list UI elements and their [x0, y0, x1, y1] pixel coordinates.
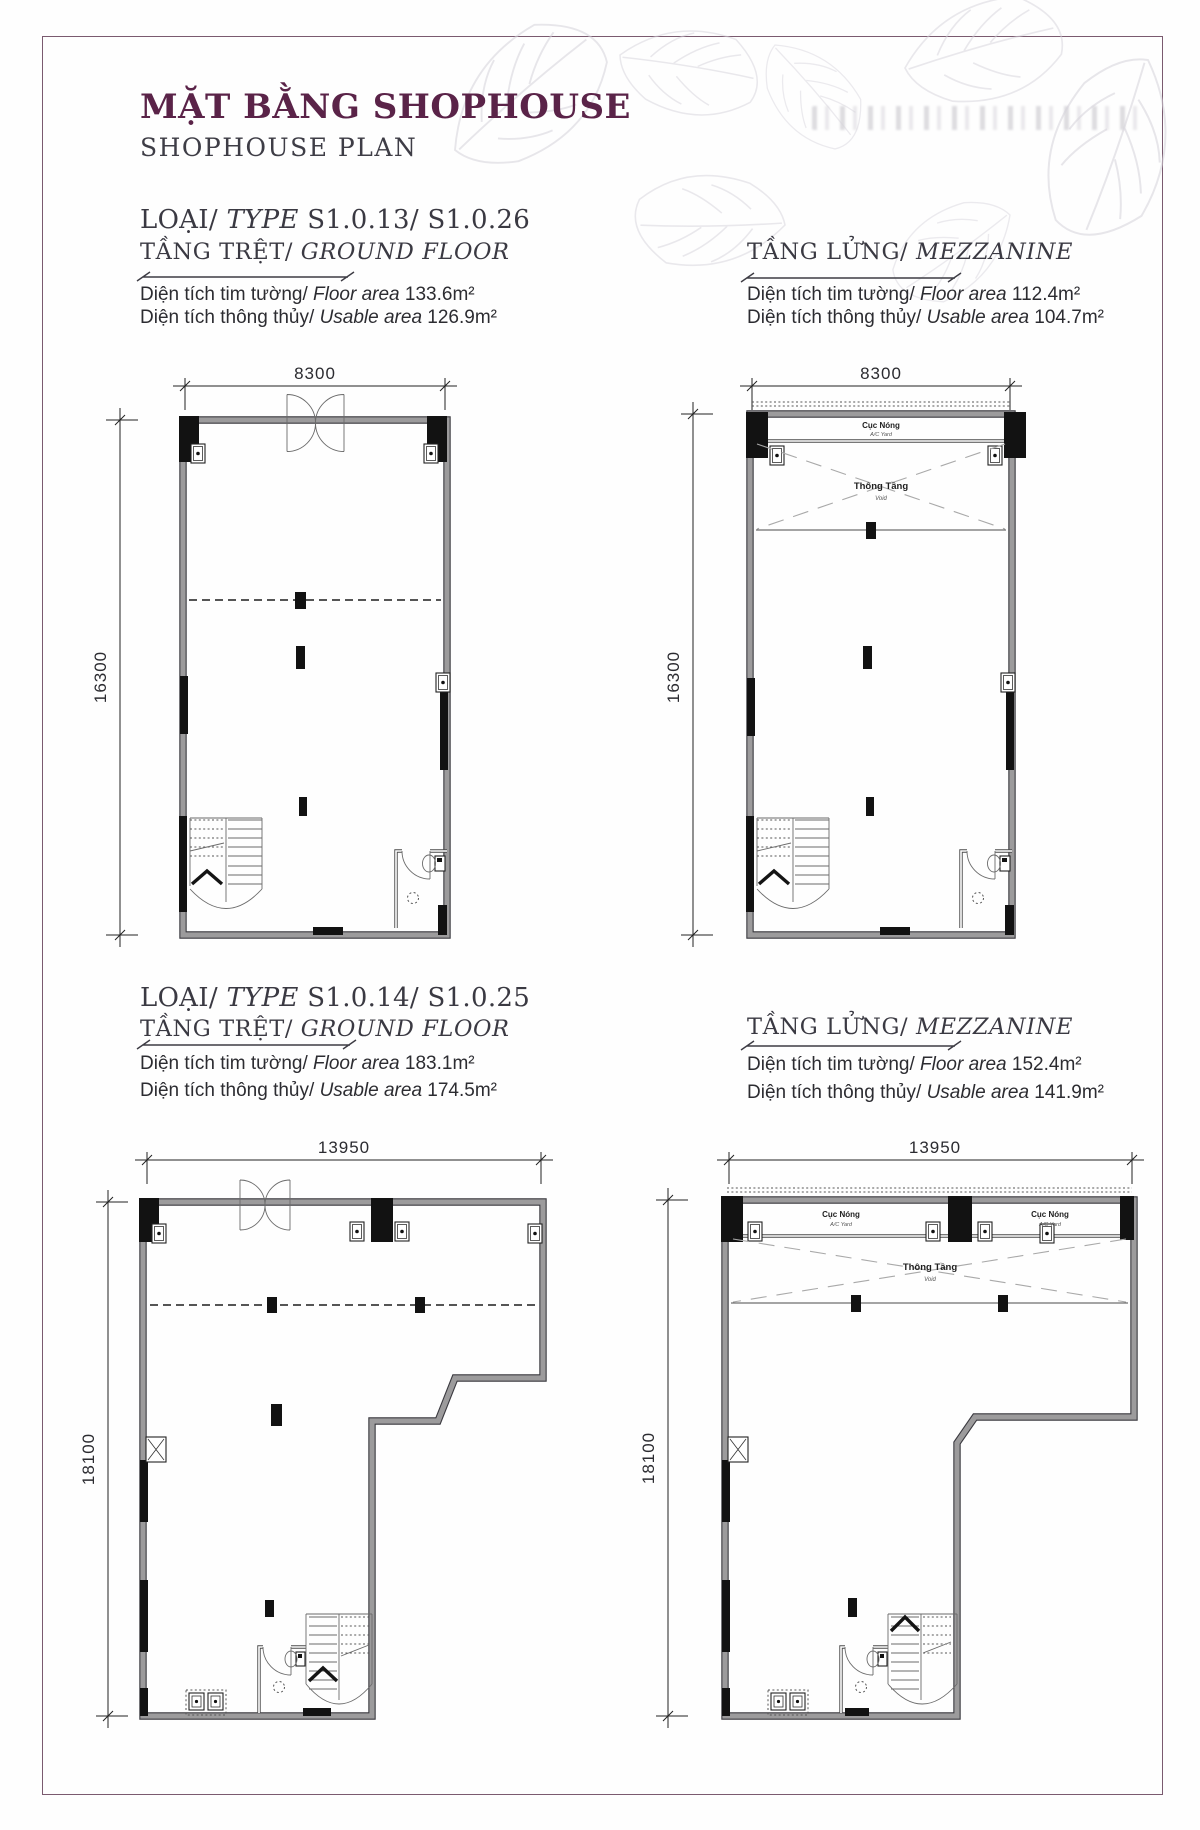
usable-area-line-mezzanine-2: Diện tích thông thủy/ Usable area 141.9m…: [747, 1082, 1104, 1103]
ac-yard-sublabel-right: A/C Yard: [1038, 1222, 1062, 1228]
floor-heading-ground-2: TẦNG TRỆT/ GROUND FLOOR: [140, 1017, 510, 1042]
staircase: [306, 1614, 372, 1704]
staircase: [888, 1614, 957, 1704]
dimension-left: 16300: [91, 408, 138, 947]
plan-s1014-mezzanine: 13950 18100 Cục Nóng A/C Yard Cục Nóng A: [639, 1138, 1144, 1728]
ac-yard-label: Cục Nóng: [862, 421, 900, 430]
page-subtitle: SHOPHOUSE PLAN: [140, 134, 417, 162]
void-area: Thông Tầng Void: [756, 444, 1006, 530]
dimension-top: 13950: [717, 1138, 1144, 1184]
plan-s1013-mezzanine: 8300 16300 Cục Nóng A/C Yard Thôn: [664, 364, 1026, 947]
void-sublabel: Void: [875, 496, 887, 502]
type-heading-s1013: LOẠI/ TYPE S1.0.13/ S1.0.26: [140, 206, 530, 235]
staircase: [757, 818, 829, 909]
dim-height-label: 16300: [91, 651, 110, 703]
canopy-dotted-line: [752, 402, 1010, 406]
ac-yard-sublabel: A/C Yard: [869, 432, 893, 438]
floor-area-line-mezzanine-1: Diện tích tim tường/ Floor area 112.4m²: [747, 284, 1080, 305]
ac-units: [768, 1690, 808, 1715]
bathroom: [259, 1647, 306, 1713]
dimension-left: 18100: [79, 1190, 128, 1728]
floor-heading-mezzanine-1: TẦNG LỬNG/ MEZZANINE: [747, 240, 1073, 265]
dim-height-label: 18100: [639, 1432, 658, 1484]
type-heading-s1014: LOẠI/ TYPE S1.0.14/ S1.0.25: [140, 984, 530, 1013]
ac-yard-label-left: Cục Nóng: [822, 1210, 860, 1219]
ac-yard-label-right: Cục Nóng: [1031, 1210, 1069, 1219]
usable-area-line-mezzanine-1: Diện tích thông thủy/ Usable area 104.7m…: [747, 307, 1104, 328]
bathroom: [841, 1647, 888, 1713]
dim-width-label: 13950: [318, 1138, 370, 1157]
usable-area-line-ground-2: Diện tích thông thủy/ Usable area 174.5m…: [140, 1080, 497, 1101]
leaf-decoration: [422, 0, 1200, 318]
canopy-dotted-line: [727, 1188, 1132, 1192]
dimension-top: 8300: [740, 364, 1022, 410]
floor-area-line-ground-2: Diện tích tim tường/ Floor area 183.1m²: [140, 1053, 475, 1074]
void-label: Thông Tầng: [903, 1262, 958, 1273]
dim-height-label: 18100: [79, 1433, 98, 1485]
page-title: MẶT BẰNG SHOPHOUSE: [140, 88, 631, 126]
dimension-left: 16300: [664, 402, 713, 947]
usable-area-line-ground-1: Diện tích thông thủy/ Usable area 126.9m…: [140, 307, 497, 328]
dim-height-label: 16300: [664, 651, 683, 703]
dimension-top: 8300: [173, 364, 457, 410]
bathroom: [961, 851, 1012, 928]
staircase: [190, 818, 262, 909]
dim-width-label: 8300: [860, 364, 902, 383]
dim-width-label: 13950: [909, 1138, 961, 1157]
plan-s1013-ground: 8300 16300: [91, 364, 457, 947]
void-area: Thông Tầng Void: [731, 1239, 1128, 1303]
dimension-left: 18100: [639, 1188, 688, 1728]
floor-area-line-mezzanine-2: Diện tích tim tường/ Floor area 152.4m²: [747, 1054, 1082, 1075]
void-sublabel: Void: [924, 1277, 936, 1283]
floor-area-line-ground-1: Diện tích tim tường/ Floor area 133.6m²: [140, 284, 475, 305]
ac-yard-sublabel-left: A/C Yard: [829, 1222, 853, 1228]
plan-s1014-ground: 13950 18100: [79, 1138, 553, 1728]
ac-units: [186, 1690, 226, 1715]
shophouse-plan-page: 8300 16300: [0, 0, 1200, 1830]
floor-heading-mezzanine-2: TẦNG LỬNG/ MEZZANINE: [747, 1015, 1073, 1040]
dim-width-label: 8300: [294, 364, 336, 383]
dimension-top: 13950: [135, 1138, 553, 1184]
void-label: Thông Tầng: [854, 481, 909, 492]
floor-heading-ground-1: TẦNG TRỆT/ GROUND FLOOR: [140, 240, 510, 265]
floor-plan-drawings: 8300 16300: [0, 0, 1200, 1830]
